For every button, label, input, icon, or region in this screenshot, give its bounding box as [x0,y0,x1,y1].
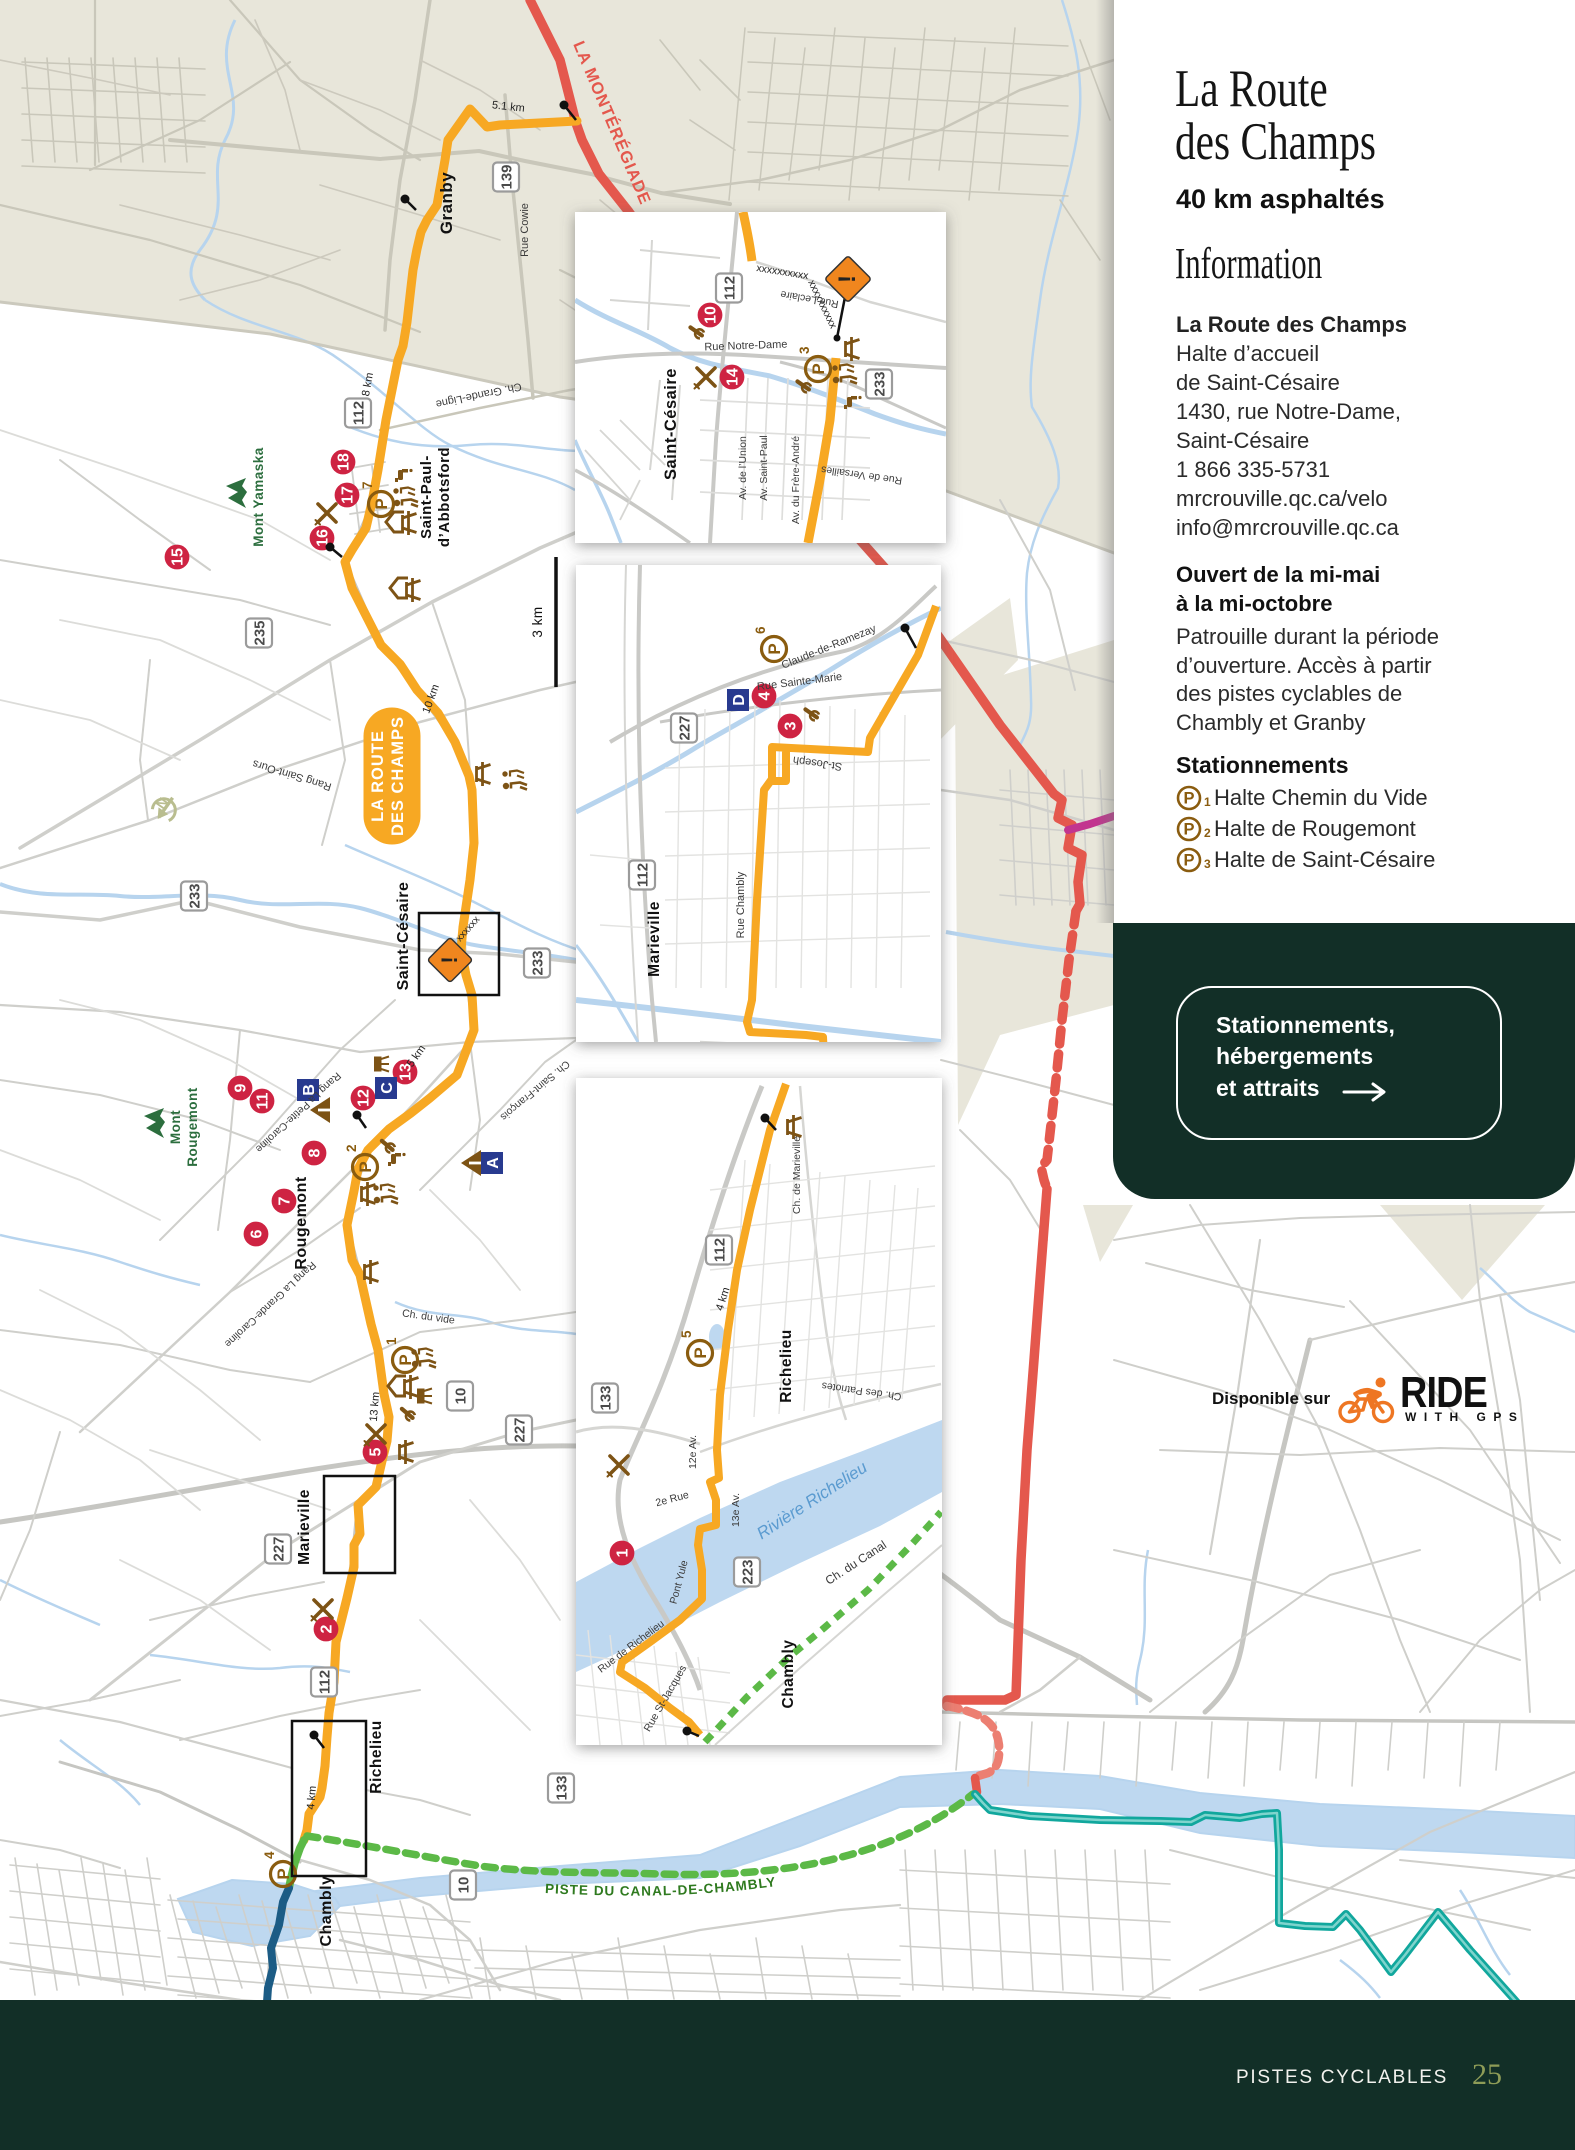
svg-text:Av. de l’Union: Av. de l’Union [737,436,749,500]
svg-text:A: A [485,1157,502,1169]
svg-text:233: 233 [530,950,547,975]
svg-text:7: 7 [360,481,375,489]
svg-text:Marieville: Marieville [646,901,663,977]
svg-text:235: 235 [252,620,269,645]
svg-text:18: 18 [336,453,353,471]
svg-text:12e Av.: 12e Av. [687,1435,699,1469]
svg-text:Richelieu: Richelieu [368,1720,385,1793]
svg-text:Rougemont: Rougemont [293,1176,310,1270]
svg-text:133: 133 [554,1775,571,1800]
svg-text:112: 112 [712,1238,729,1262]
svg-text:139: 139 [499,164,516,189]
svg-text:Saint-Césaire: Saint-Césaire [395,882,412,991]
svg-text:Granby: Granby [437,172,456,235]
svg-text:LA ROUTE: LA ROUTE [369,730,387,822]
svg-text:112: 112 [317,1670,334,1694]
svg-text:8: 8 [307,1148,324,1157]
svg-text:Richelieu: Richelieu [778,1329,795,1402]
svg-text:3: 3 [1204,857,1211,871]
svg-text:Saint-Césaire: Saint-Césaire [662,368,680,480]
svg-text:P: P [356,1161,375,1172]
svg-text:!: ! [437,956,462,963]
svg-text:227: 227 [677,715,694,740]
svg-text:P: P [1183,852,1194,870]
svg-text:P: P [809,363,828,374]
svg-text:Av. Saint-Paul: Av. Saint-Paul [758,435,770,501]
svg-text:10: 10 [453,1388,470,1405]
svg-text:Rougemont: Rougemont [185,1087,200,1167]
svg-text:2: 2 [344,1144,359,1152]
svg-text:D: D [731,694,748,706]
svg-text:1: 1 [1204,795,1211,809]
svg-text:133: 133 [598,1385,615,1410]
svg-text:P: P [372,498,391,509]
svg-text:d’Abbotsford: d’Abbotsford [436,447,453,547]
svg-text:4 km: 4 km [305,1785,319,1810]
svg-text:Mont: Mont [168,1110,183,1144]
svg-text:7: 7 [277,1196,294,1205]
svg-text:1: 1 [384,1337,399,1345]
svg-text:!: ! [834,275,861,283]
svg-text:Rue Chambly: Rue Chambly [735,871,747,938]
svg-text:9: 9 [233,1083,250,1092]
svg-text:11: 11 [255,1092,272,1109]
svg-text:13e Av.: 13e Av. [730,1493,742,1527]
svg-text:2: 2 [1204,826,1211,840]
svg-text:5: 5 [368,1447,385,1456]
svg-text:P: P [274,1868,293,1879]
svg-text:6: 6 [249,1229,266,1238]
svg-text:10: 10 [456,1877,473,1894]
svg-text:Chambly: Chambly [318,1875,335,1946]
svg-text:233: 233 [187,883,204,908]
svg-text:227: 227 [512,1417,529,1442]
svg-text:P: P [1183,821,1194,839]
svg-text:Av. du Frère-André: Av. du Frère-André [790,436,802,524]
svg-text:6: 6 [753,626,768,634]
svg-text:C: C [379,1082,396,1094]
svg-text:DES CHAMPS: DES CHAMPS [389,716,407,836]
svg-text:3: 3 [797,346,812,354]
svg-text:P: P [691,1347,710,1358]
svg-text:P: P [765,643,784,654]
svg-text:Saint-Paul-: Saint-Paul- [418,455,435,539]
svg-text:Chambly: Chambly [780,1640,797,1709]
svg-text:Mont Yamaska: Mont Yamaska [251,447,266,547]
svg-text:17: 17 [340,486,357,504]
svg-text:14: 14 [725,368,742,386]
svg-text:Ch. de Marieville: Ch. de Marieville [791,1136,803,1214]
svg-text:3: 3 [783,721,800,730]
svg-text:15: 15 [170,548,187,566]
svg-text:5: 5 [679,1330,694,1338]
svg-text:4: 4 [262,1851,277,1859]
svg-text:P: P [1183,790,1194,808]
svg-text:1: 1 [615,1548,632,1557]
svg-text:Rue Cowie: Rue Cowie [519,203,531,257]
svg-text:112: 112 [351,401,368,425]
svg-text:10: 10 [703,306,720,324]
svg-text:233: 233 [872,371,889,396]
svg-text:227: 227 [271,1536,288,1561]
svg-text:12: 12 [356,1089,373,1107]
svg-text:3 km: 3 km [530,606,545,637]
svg-text:2: 2 [319,1624,336,1633]
svg-text:112: 112 [722,276,739,300]
svg-text:112: 112 [635,863,652,887]
svg-text:223: 223 [740,1559,757,1584]
svg-text:Marieville: Marieville [296,1489,313,1565]
